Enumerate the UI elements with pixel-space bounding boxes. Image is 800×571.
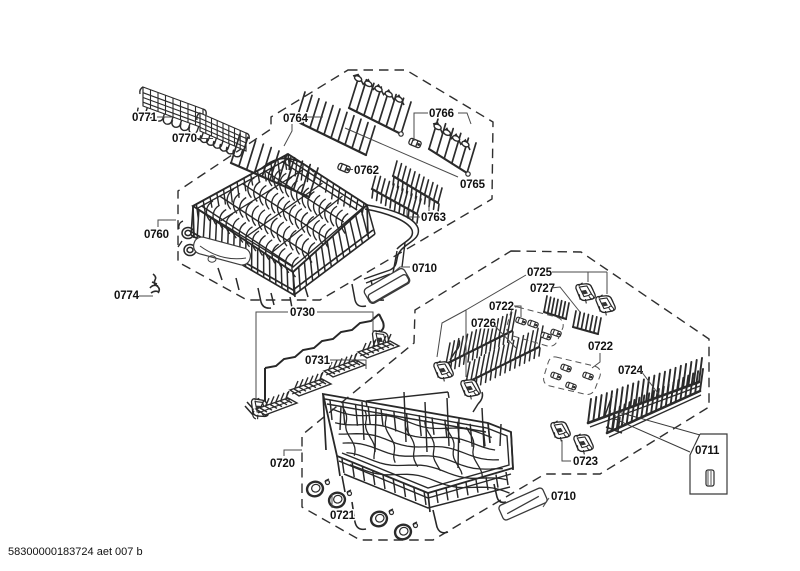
svg-text:0710: 0710 [412, 263, 437, 275]
svg-text:0762: 0762 [354, 165, 379, 177]
svg-text:0722: 0722 [489, 301, 514, 313]
svg-text:0763: 0763 [421, 212, 446, 224]
svg-text:0771: 0771 [132, 112, 158, 124]
svg-text:0726: 0726 [471, 318, 496, 330]
svg-text:0727: 0727 [530, 283, 555, 295]
svg-text:0766: 0766 [429, 108, 454, 120]
svg-text:0711: 0711 [695, 445, 720, 457]
svg-text:0723: 0723 [573, 456, 598, 468]
svg-text:0720: 0720 [270, 458, 295, 470]
svg-text:0760: 0760 [144, 229, 169, 241]
svg-text:0774: 0774 [114, 290, 140, 302]
svg-text:0764: 0764 [283, 113, 309, 125]
svg-text:0722: 0722 [588, 341, 613, 353]
svg-text:0765: 0765 [460, 179, 486, 191]
svg-text:0730: 0730 [290, 307, 315, 319]
svg-text:0721: 0721 [330, 510, 356, 522]
svg-text:0731: 0731 [305, 355, 331, 367]
svg-text:58300000183724 aet 007 b: 58300000183724 aet 007 b [8, 546, 143, 558]
svg-text:0725: 0725 [527, 267, 553, 279]
svg-text:0724: 0724 [618, 365, 644, 377]
svg-text:0710: 0710 [551, 491, 576, 503]
svg-text:0770: 0770 [172, 133, 197, 145]
